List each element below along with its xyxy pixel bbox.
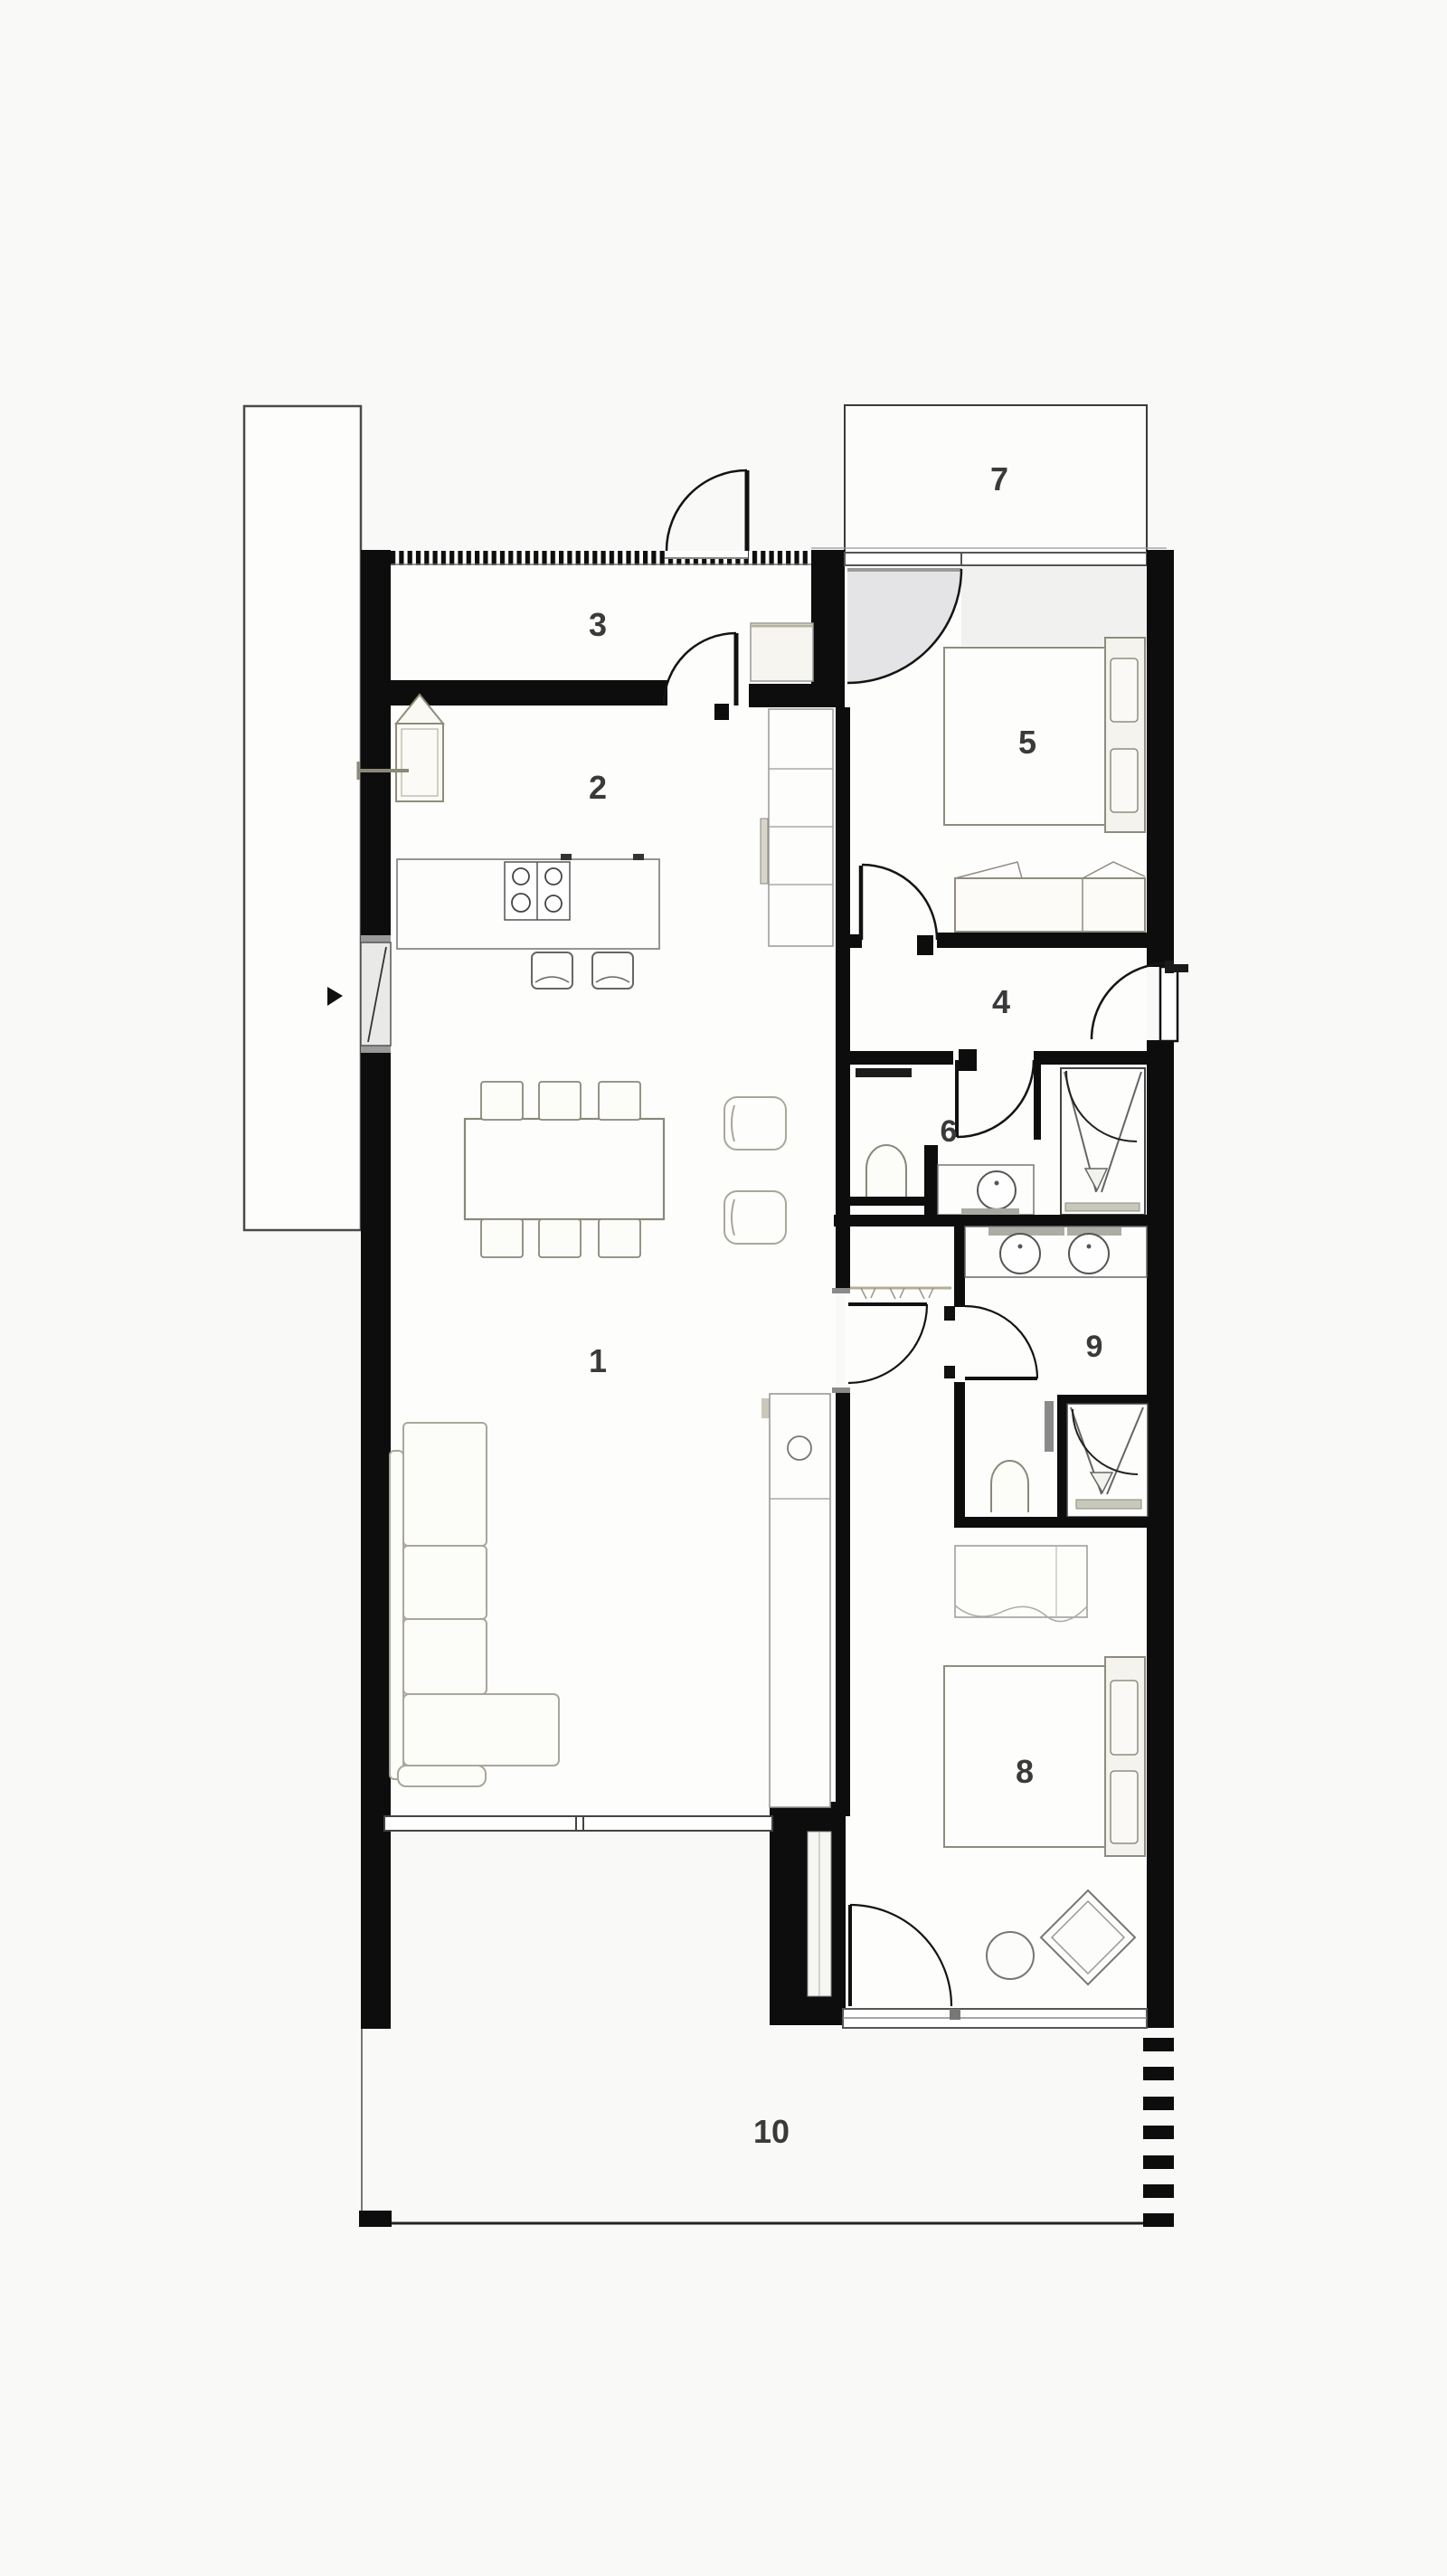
- svg-text:2: 2: [589, 769, 607, 806]
- svg-text:9: 9: [1086, 1330, 1103, 1364]
- svg-text:4: 4: [992, 983, 1010, 1020]
- svg-text:6: 6: [941, 1114, 958, 1149]
- svg-text:1: 1: [589, 1342, 607, 1379]
- svg-text:7: 7: [990, 460, 1008, 497]
- svg-text:8: 8: [1016, 1753, 1034, 1790]
- svg-text:10: 10: [753, 2113, 790, 2150]
- svg-text:3: 3: [589, 606, 607, 643]
- svg-text:5: 5: [1018, 724, 1036, 761]
